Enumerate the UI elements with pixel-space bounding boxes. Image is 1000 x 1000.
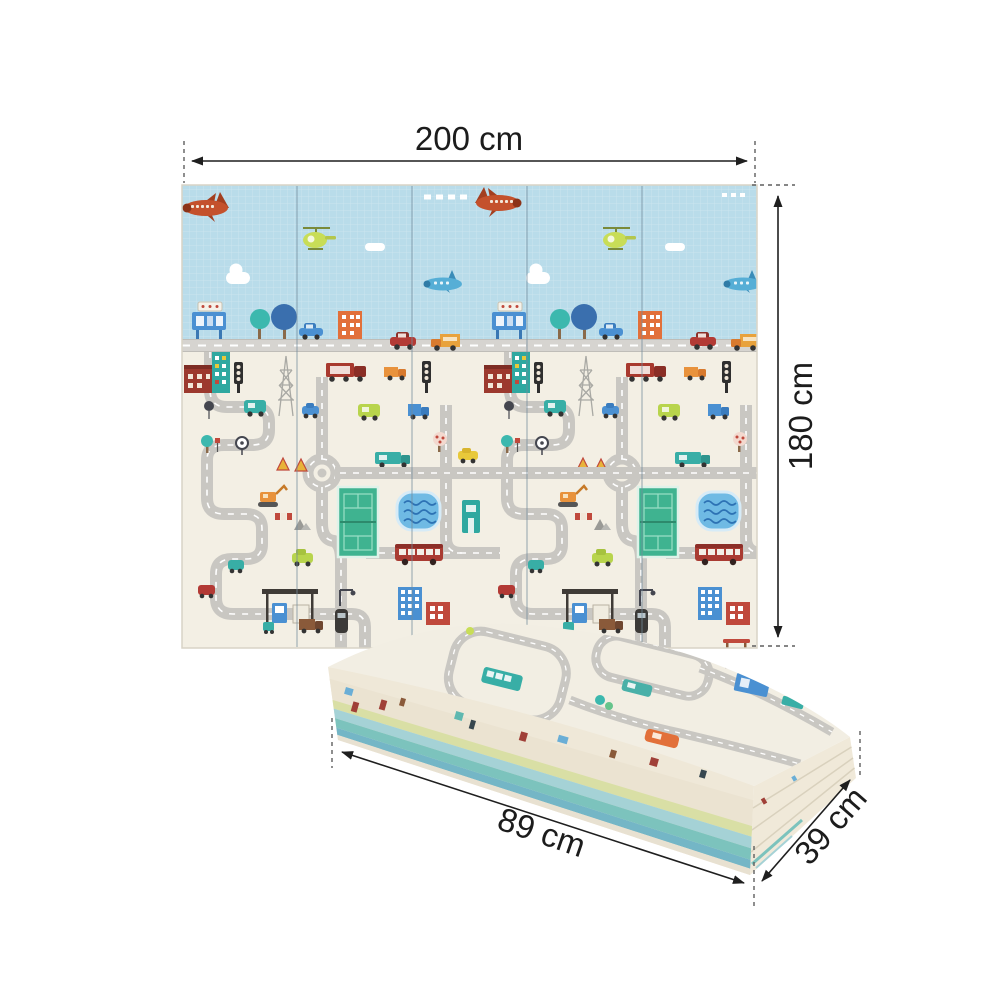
unfolded-mat	[182, 185, 800, 648]
tree-icon	[595, 695, 605, 705]
tree-icon	[466, 627, 474, 635]
width-dimension: 200 cm	[184, 120, 755, 183]
height-dimension-label: 180 cm	[782, 362, 819, 470]
product-dimension-diagram: 200 cm 180 cm 89 cm 39 cm	[0, 0, 1000, 1000]
tree-icon	[605, 702, 613, 710]
folded-mat	[328, 624, 856, 875]
height-dimension: 180 cm	[752, 185, 819, 646]
width-dimension-label: 200 cm	[415, 120, 523, 157]
